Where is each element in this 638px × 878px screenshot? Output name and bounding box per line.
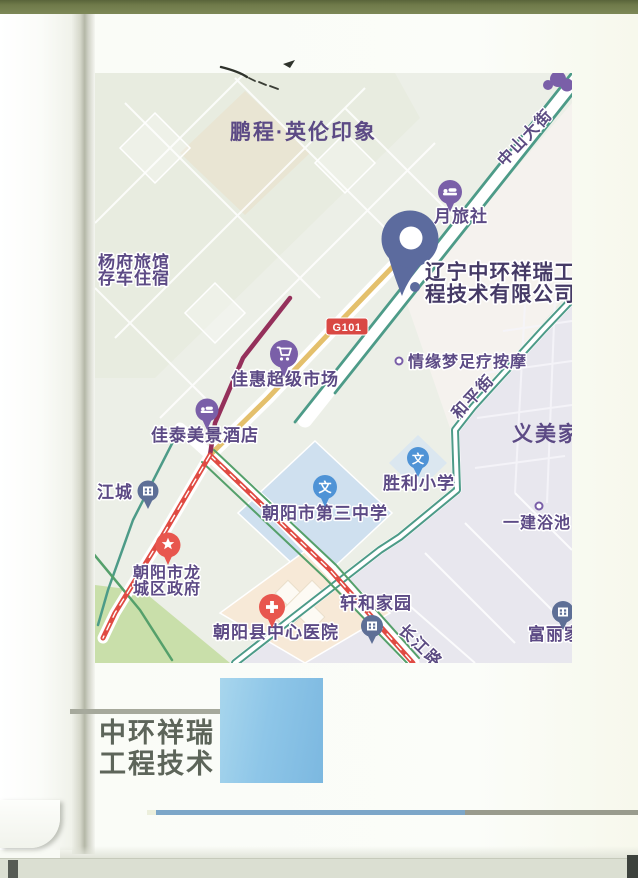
scanner-bottom-edge	[0, 858, 638, 878]
logo-rule-line	[70, 709, 222, 714]
pen-scratch-mark	[213, 55, 305, 93]
footer-bar-grey	[465, 810, 638, 815]
poi-label-gov-2: 城区政府	[133, 579, 201, 598]
svg-text:文: 文	[318, 480, 332, 495]
logo-line1: 中环祥瑞	[89, 718, 215, 749]
scanned-page: 鹏程·英伦印象 义美家 中山大街 和平街 长江路 G101 杨府旅馆 存车住宿 …	[0, 0, 638, 878]
foot-massage-dot	[396, 358, 403, 365]
company-label-line2: 程技术有限公司	[425, 282, 572, 306]
poi-label-foot-massage: 情缘梦足疗按摩	[408, 352, 527, 371]
location-map: 鹏程·英伦印象 义美家 中山大街 和平街 长江路 G101 杨府旅馆 存车住宿 …	[95, 73, 572, 663]
poi-label-hospital: 朝阳县中心医院	[213, 622, 339, 642]
svg-text:文: 文	[412, 451, 425, 466]
poi-label-yijian-bath: 一建浴池	[503, 513, 571, 532]
scan-artifact-right	[627, 855, 638, 878]
poi-label-shengli-school: 胜利小学	[383, 473, 455, 493]
poi-label-yangfu-2: 存车住宿	[98, 268, 170, 288]
district-label-yimeijia: 义美家	[512, 422, 572, 446]
poi-label-lvshe: 月旅社	[433, 206, 488, 226]
scan-artifact-left	[8, 860, 18, 878]
yijian-bath-dot	[536, 503, 543, 510]
footer-bar-tick	[147, 810, 156, 815]
logo-wordmark: 中环祥瑞 工程技术	[89, 718, 215, 780]
footer-bar-blue	[156, 810, 465, 815]
poi-label-xuanhe: 轩和家园	[340, 593, 412, 613]
left-page-edge	[0, 14, 72, 850]
g101-badge: G101	[326, 318, 368, 335]
poi-label-jiatai-hotel: 佳泰美景酒店	[151, 425, 259, 445]
poi-label-gov-1: 朝阳市龙	[133, 563, 201, 582]
company-label-line1: 辽宁中环祥瑞工	[425, 260, 572, 284]
scanner-top-edge	[0, 0, 638, 14]
poi-label-jiangcheng: 江城	[97, 483, 133, 502]
logo-line2: 工程技术	[89, 749, 215, 780]
logo-blue-square	[220, 678, 323, 783]
page-bottom-shadow	[60, 846, 638, 858]
svg-text:G101: G101	[333, 322, 362, 334]
district-label-pengcheng: 鹏程·英伦印象	[230, 120, 377, 144]
poi-label-fuli: 富丽家	[528, 624, 572, 644]
